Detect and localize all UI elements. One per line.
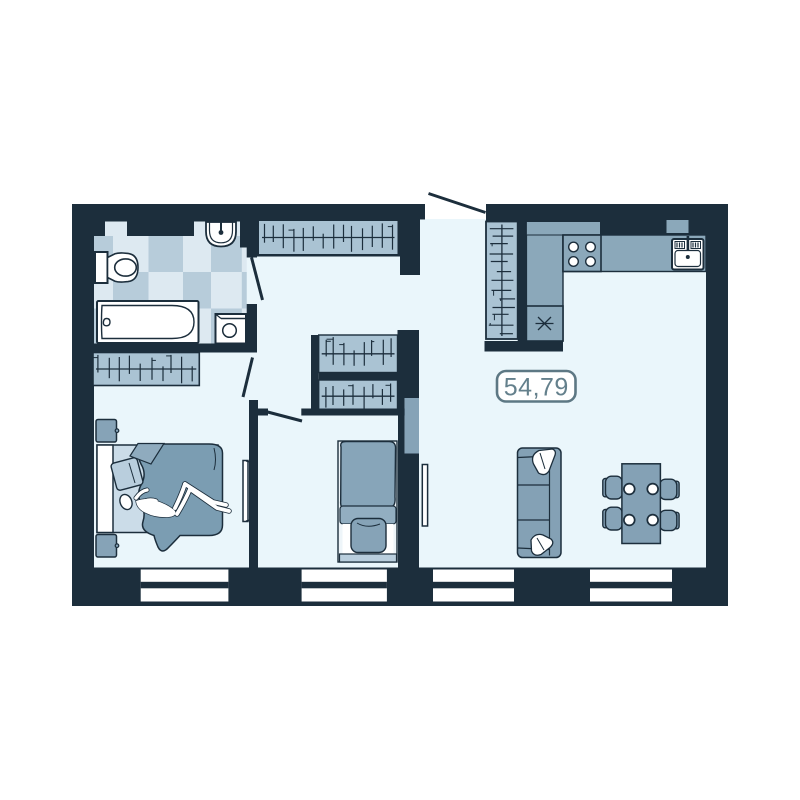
- svg-text:54,79: 54,79: [504, 374, 569, 402]
